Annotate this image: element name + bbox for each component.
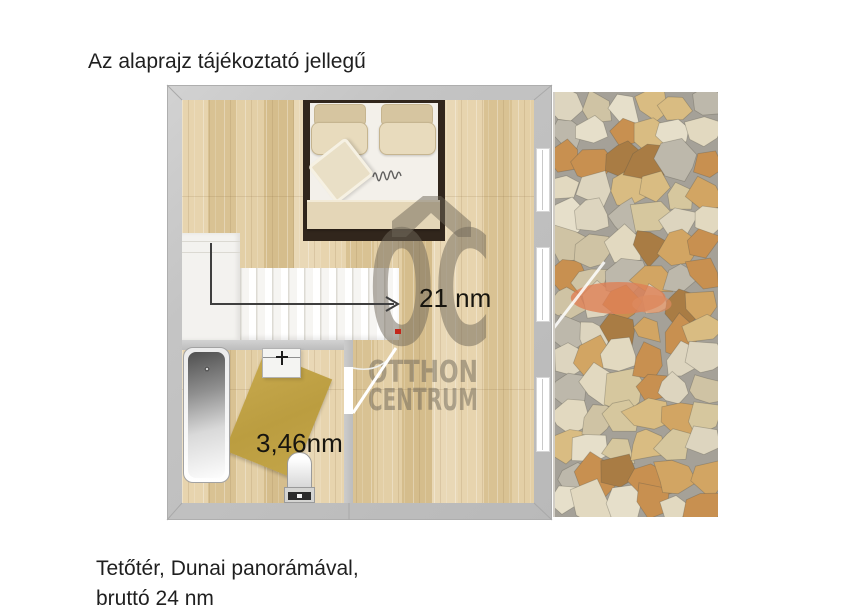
bed-decor-script [371,166,407,182]
floor-plan-image: Az alaprajz tájékoztató jellegű [0,0,852,616]
bathtub-drain [204,366,210,372]
faucet-icon [276,356,288,358]
toilet-flush-button [297,494,302,498]
double-bed [303,100,445,241]
flagstone [693,92,718,115]
orange-stone-patch [632,295,672,313]
bathroom-wall-vertical [344,340,353,503]
stairs-run [240,268,399,340]
bathtub [183,347,230,483]
stair-tread-line [182,241,240,242]
footer-line1: Tetőtér, Dunai panorámával, [96,557,359,581]
footer-line2: bruttó 24 nm [96,587,214,611]
disclaimer-title: Az alaprajz tájékoztató jellegű [88,50,366,74]
bathroom-area-label: 3,46nm [256,428,343,459]
flagstone [694,151,718,178]
red-marker-dot [395,329,401,334]
stairs-landing [182,233,240,340]
window-opening [536,148,550,212]
bed-bench [307,200,440,229]
window-opening [536,247,550,322]
stair-tread-line [182,252,240,253]
main-room-area-label: 21 nm [419,283,491,314]
stone-terrace [553,92,718,517]
toilet-tank [284,487,315,503]
faucet-icon [281,351,283,365]
bathroom-door-opening [344,367,353,414]
sink [262,348,301,378]
bed-pillow [379,122,436,155]
window-opening [536,377,550,452]
